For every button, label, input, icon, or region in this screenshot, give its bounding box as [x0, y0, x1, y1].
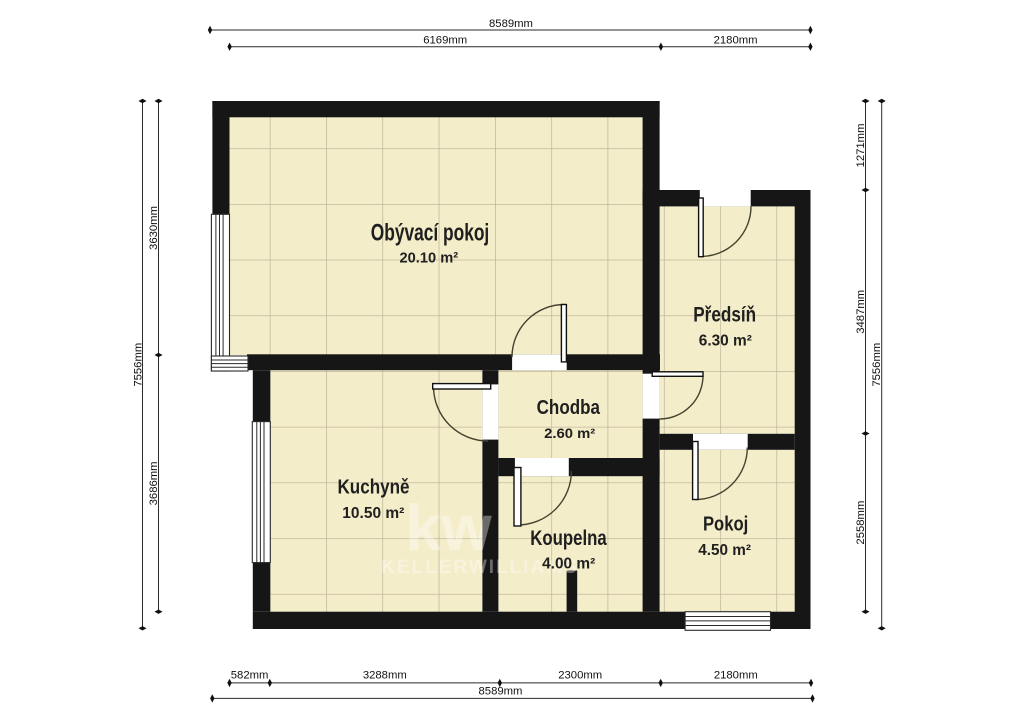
- svg-text:7556mm: 7556mm: [133, 343, 145, 387]
- svg-text:Obývací pokoj: Obývací pokoj: [371, 220, 490, 247]
- svg-text:2558mm: 2558mm: [855, 501, 867, 545]
- svg-text:2180mm: 2180mm: [714, 670, 758, 682]
- svg-text:2.60 m²: 2.60 m²: [544, 425, 595, 441]
- svg-text:Chodba: Chodba: [537, 397, 601, 419]
- svg-text:3686mm: 3686mm: [148, 461, 160, 505]
- svg-text:8589mm: 8589mm: [489, 18, 533, 30]
- svg-text:7556mm: 7556mm: [871, 343, 883, 387]
- svg-text:3288mm: 3288mm: [363, 670, 407, 682]
- svg-text:Předsíň: Předsíň: [693, 303, 756, 327]
- svg-text:4.50 m²: 4.50 m²: [698, 542, 751, 559]
- svg-text:10.50 m²: 10.50 m²: [342, 505, 404, 522]
- svg-text:kw: kw: [405, 491, 492, 564]
- svg-text:1271mm: 1271mm: [855, 124, 867, 168]
- svg-text:582mm: 582mm: [231, 670, 269, 682]
- svg-text:20.10 m²: 20.10 m²: [400, 249, 459, 266]
- svg-text:4.00 m²: 4.00 m²: [542, 556, 595, 573]
- svg-text:8589mm: 8589mm: [479, 686, 523, 698]
- svg-text:6169mm: 6169mm: [423, 35, 467, 47]
- svg-text:6.30 m²: 6.30 m²: [699, 332, 752, 349]
- svg-text:Kuchyně: Kuchyně: [338, 475, 410, 498]
- svg-text:3487mm: 3487mm: [855, 290, 867, 334]
- svg-text:3630mm: 3630mm: [148, 206, 160, 250]
- svg-text:2180mm: 2180mm: [714, 35, 758, 47]
- svg-text:2300mm: 2300mm: [558, 670, 602, 682]
- svg-text:Koupelna: Koupelna: [530, 525, 607, 550]
- svg-text:Pokoj: Pokoj: [703, 514, 748, 536]
